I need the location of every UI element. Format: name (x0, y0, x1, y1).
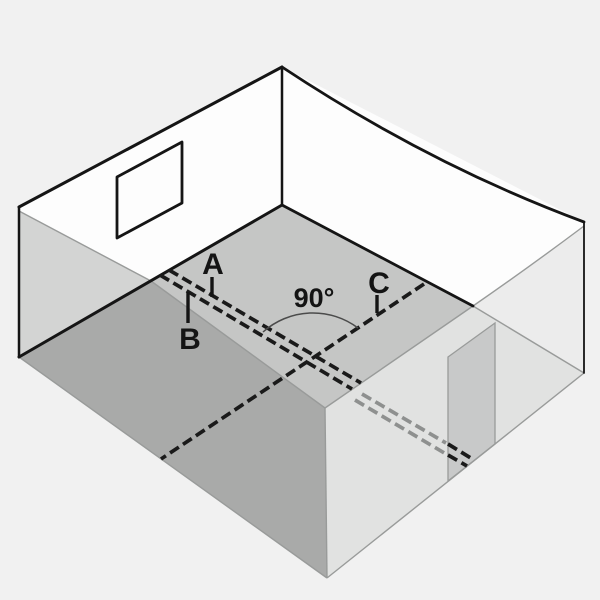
label-line-b: B (179, 323, 201, 356)
angle-label: 90° (294, 283, 335, 313)
room-chalk-line-diagram: A B C 90° (0, 0, 600, 600)
label-line-c: C (368, 267, 390, 300)
diagram-canvas: A B C 90° (0, 0, 600, 600)
label-line-a: A (202, 248, 224, 281)
